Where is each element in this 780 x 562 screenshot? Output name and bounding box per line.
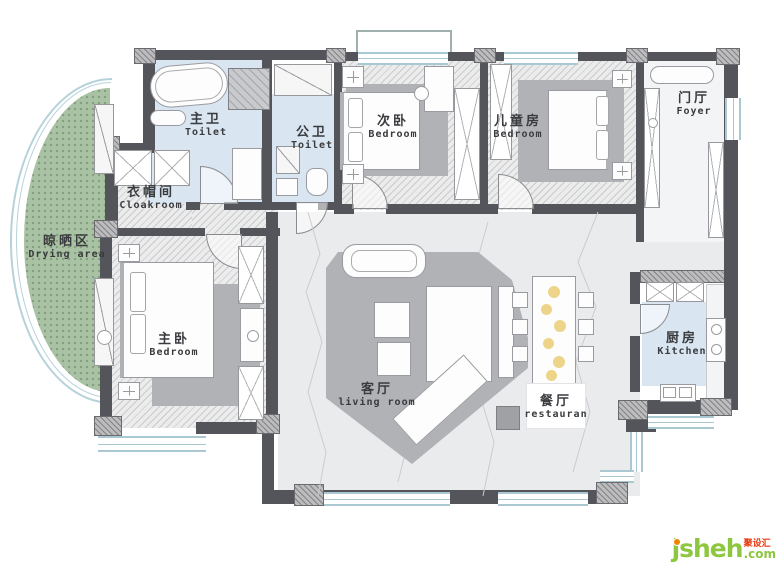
pier <box>94 416 122 436</box>
bay-window <box>98 436 206 452</box>
cabinet-icon <box>644 88 660 208</box>
pier <box>94 220 118 238</box>
wall <box>105 228 205 236</box>
closet-icon <box>154 150 190 186</box>
dining-chair <box>512 346 528 362</box>
sink-icon <box>150 110 186 126</box>
washer-icon <box>94 278 114 366</box>
pier <box>294 484 324 506</box>
desk <box>424 66 454 112</box>
cabinet-icon <box>276 146 300 174</box>
flower-decor <box>553 356 565 368</box>
pillow <box>130 272 146 312</box>
pillow <box>348 132 363 162</box>
wall <box>480 60 488 210</box>
loveseat-sofa <box>342 244 426 278</box>
shower-icon <box>228 68 270 110</box>
wardrobe-icon <box>238 246 264 304</box>
coffee-table <box>377 342 411 376</box>
nightstand-icon <box>612 162 632 180</box>
window <box>498 492 588 506</box>
dining-label-card <box>526 383 586 429</box>
pier <box>626 48 648 63</box>
wall <box>636 60 644 242</box>
pier <box>474 48 496 63</box>
window <box>630 432 643 472</box>
window <box>725 98 741 140</box>
pier <box>716 48 740 65</box>
window <box>648 416 714 429</box>
shower-icon <box>274 64 332 96</box>
nightstand-icon <box>612 70 632 88</box>
brand-suffix: .com <box>744 549 776 560</box>
bench <box>650 66 714 84</box>
chair-icon <box>414 86 429 101</box>
wall <box>262 428 274 496</box>
side-table <box>496 406 520 430</box>
flower-decor <box>554 320 566 332</box>
pillow <box>130 314 146 354</box>
closet-icon <box>114 150 152 186</box>
wall <box>143 50 155 150</box>
pier <box>326 48 346 63</box>
wall <box>266 212 278 428</box>
floor-plan: 主卫 Toilet 公卫 Toilet 次卧 Bedroom 儿童房 Bedro… <box>0 0 780 562</box>
pier <box>700 398 732 416</box>
sink-basin-icon <box>663 387 676 398</box>
burner-icon <box>711 344 722 355</box>
flower-decor <box>546 370 557 381</box>
cabinet-icon <box>676 282 704 302</box>
watermark-logo: jsheh 聚设汇 .com <box>672 538 776 560</box>
pillow <box>596 96 609 126</box>
sink-icon <box>276 178 298 196</box>
pier <box>134 48 156 64</box>
wall <box>532 204 644 214</box>
dining-chair <box>578 319 594 335</box>
wall <box>630 272 640 304</box>
wall <box>186 202 200 210</box>
brand-name: jsheh <box>672 534 743 562</box>
wall <box>724 52 738 242</box>
pillow <box>348 98 363 128</box>
flower-decor <box>548 286 560 298</box>
wardrobe-icon <box>454 88 480 200</box>
nightstand-icon <box>118 244 140 262</box>
dining-chair <box>578 346 594 362</box>
pier <box>618 400 648 420</box>
flower-decor <box>543 338 554 349</box>
utility-cabinet-icon <box>94 104 114 174</box>
wall <box>143 50 343 60</box>
pillow <box>596 130 609 160</box>
dining-chair <box>578 292 594 308</box>
window <box>358 52 448 65</box>
wall <box>334 204 354 214</box>
brand-text: jsheh <box>672 538 743 560</box>
wardrobe-icon <box>490 64 512 160</box>
wall <box>724 242 738 410</box>
toilet-icon <box>306 168 328 196</box>
wardrobe-icon <box>238 366 264 420</box>
dining-chair <box>512 319 528 335</box>
flower-decor <box>541 304 552 315</box>
nightstand-icon <box>342 66 364 88</box>
window <box>504 52 578 65</box>
pier <box>596 482 628 504</box>
sink-basin-icon <box>679 387 692 398</box>
logo-dot-icon <box>673 538 681 546</box>
burner-icon <box>711 324 722 335</box>
wall <box>386 204 498 214</box>
washer-drum-icon <box>97 330 112 345</box>
shoe-cabinet-icon <box>708 142 724 238</box>
coffee-table <box>374 302 410 338</box>
dining-chair <box>512 292 528 308</box>
decor-icon <box>247 330 259 342</box>
vanity-icon <box>232 148 262 200</box>
nightstand-icon <box>342 164 364 184</box>
decor-icon <box>648 118 658 128</box>
cabinet-icon <box>646 282 674 302</box>
nightstand-icon <box>118 382 140 400</box>
wall <box>630 336 640 392</box>
